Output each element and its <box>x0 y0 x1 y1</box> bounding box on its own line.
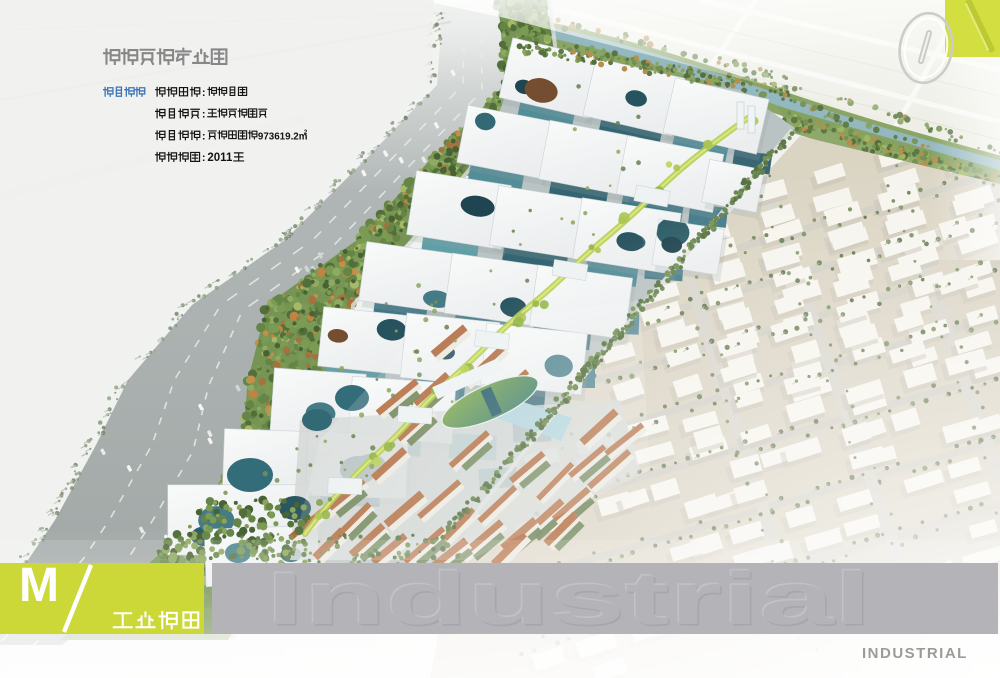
svg-text::: : <box>202 109 206 121</box>
svg-text::: : <box>202 87 206 99</box>
svg-text:973619.2m: 973619.2m <box>258 132 308 143</box>
svg-text:Industrial: Industrial <box>267 557 872 640</box>
svg-text:M: M <box>19 559 59 612</box>
svg-text::: : <box>202 131 206 143</box>
svg-text:INDUSTRIAL: INDUSTRIAL <box>862 645 968 662</box>
svg-text:2011: 2011 <box>207 152 233 164</box>
svg-text::: : <box>202 152 206 164</box>
